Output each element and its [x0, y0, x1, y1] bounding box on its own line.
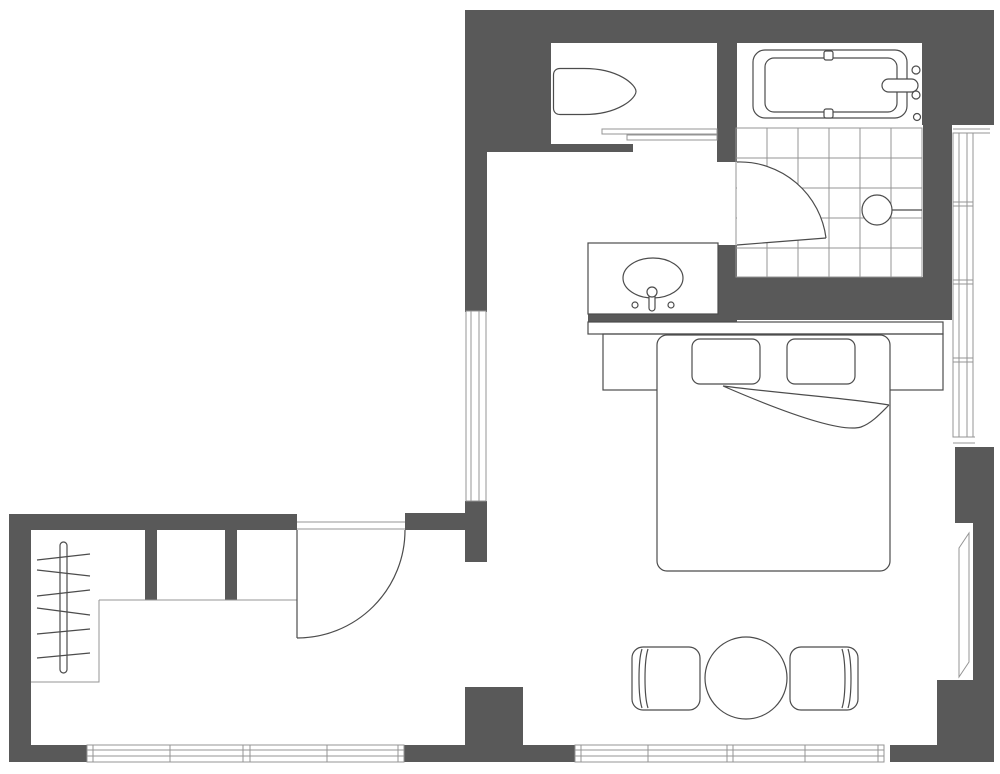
wc-sliding-door — [602, 129, 717, 140]
wall-entry-right — [405, 513, 465, 530]
wardrobe-rail — [60, 542, 67, 673]
floor-plan-drawing — [0, 0, 1000, 774]
bathtub-handle-bottom — [824, 109, 833, 118]
entry-door — [297, 522, 405, 638]
wall-bottom-band-center — [404, 745, 575, 762]
wall-vanity-band — [588, 314, 718, 322]
dining-chair-left — [632, 647, 700, 710]
wall-left-lower-wing — [9, 514, 31, 762]
bathtub — [753, 50, 921, 121]
wall-right-lower — [973, 523, 994, 688]
bathroom-door — [737, 162, 826, 245]
double-bed — [588, 322, 943, 571]
wall-lower-wing-top — [9, 514, 297, 530]
bathtub-fitting — [914, 114, 921, 121]
wall-bath-left-lower — [718, 245, 737, 322]
vanity-sink — [588, 243, 718, 314]
wall-closet-pier-2 — [225, 530, 237, 600]
headboard-ledge — [588, 322, 943, 334]
wall-left-stub — [465, 501, 487, 562]
bathtub-fitting — [912, 66, 920, 74]
wall-wc-bath-pier — [717, 43, 737, 162]
floor-drain — [862, 195, 922, 225]
sink-hole — [668, 302, 674, 308]
right-wall-window — [953, 129, 990, 443]
wall-right-mid-block — [955, 447, 994, 523]
pillow-left — [692, 339, 760, 384]
left-wall-window — [466, 311, 486, 501]
wall-bottom-band-right — [890, 745, 950, 762]
dining-set — [632, 637, 858, 719]
bathtub-handle-top — [824, 51, 833, 60]
sink-hole — [632, 302, 638, 308]
bathtub-fitting — [912, 91, 920, 99]
wall-bath-bottom — [736, 277, 952, 320]
wardrobe — [31, 542, 297, 682]
bathtub-faucet — [882, 79, 918, 92]
wall-left-upper — [465, 43, 487, 312]
entry-threshold — [297, 522, 405, 529]
angled-side-window — [959, 533, 969, 677]
bottom-right-window — [575, 745, 884, 762]
dining-table — [705, 637, 787, 719]
pillow-right — [787, 339, 855, 384]
wall-wc-bottom-band — [487, 144, 633, 152]
floor-plan — [0, 0, 1000, 774]
wall-closet-pier-1 — [145, 530, 157, 600]
wall-top-right-corner — [922, 10, 994, 125]
bottom-left-window — [87, 745, 404, 762]
dining-chair-right — [790, 647, 858, 710]
toilet — [554, 69, 637, 115]
